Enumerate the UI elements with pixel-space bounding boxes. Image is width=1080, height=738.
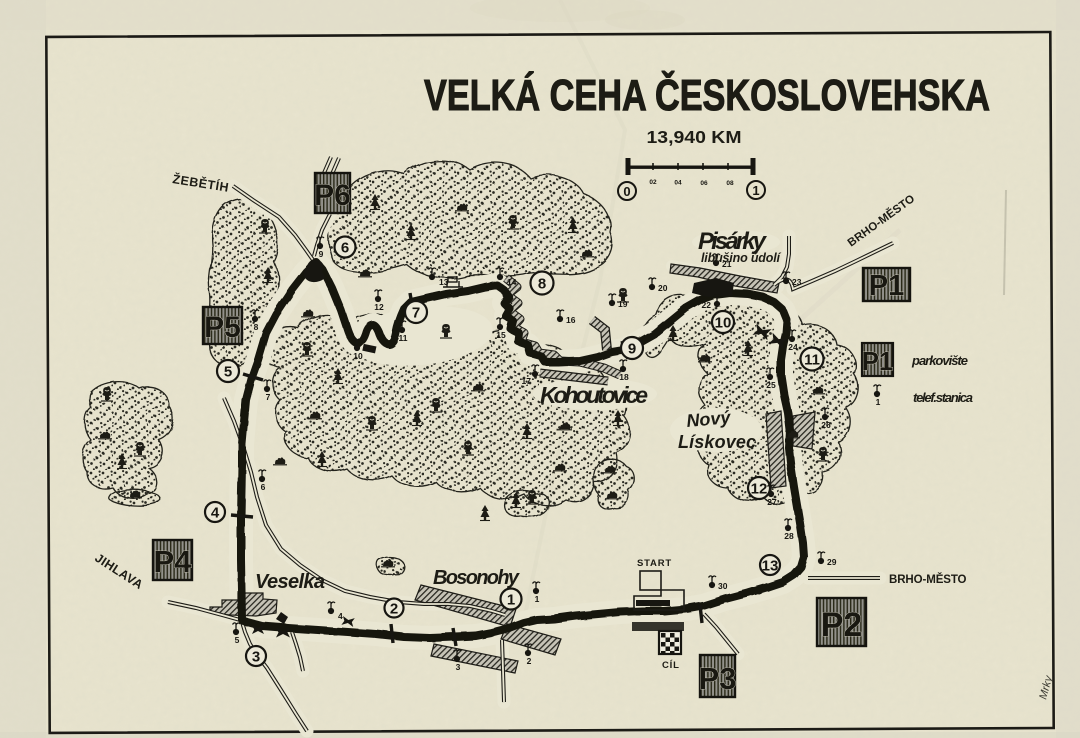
svg-text:7: 7: [412, 305, 420, 322]
svg-text:1: 1: [876, 397, 881, 407]
svg-text:5: 5: [224, 364, 232, 381]
svg-text:12: 12: [751, 481, 768, 498]
svg-text:P2: P2: [821, 606, 863, 644]
svg-text:8: 8: [538, 276, 546, 293]
svg-text:2: 2: [527, 656, 532, 666]
svg-text:libušino údolí: libušino údolí: [701, 251, 782, 265]
svg-text:P3: P3: [699, 661, 737, 696]
svg-text:12: 12: [374, 302, 384, 312]
svg-text:1: 1: [535, 594, 540, 604]
svg-text:START: START: [637, 558, 672, 569]
svg-text:13,940 KM: 13,940 KM: [647, 127, 742, 147]
svg-text:10: 10: [353, 351, 363, 361]
svg-text:18: 18: [619, 372, 629, 382]
svg-text:VELKÁ CEHA ČESKOSLOVEHSKA: VELKÁ CEHA ČESKOSLOVEHSKA: [424, 69, 990, 120]
svg-text:23: 23: [792, 277, 802, 287]
svg-text:Veselka: Veselka: [255, 571, 325, 593]
svg-text:16: 16: [566, 315, 576, 325]
svg-text:P6: P6: [314, 179, 351, 212]
svg-text:parkovište: parkovište: [911, 353, 968, 368]
svg-text:1: 1: [507, 592, 515, 609]
svg-text:Bosonohy: Bosonohy: [433, 567, 520, 589]
svg-text:telef.stanica: telef.stanica: [913, 390, 973, 405]
svg-text:13: 13: [762, 558, 779, 575]
svg-text:22: 22: [702, 300, 712, 310]
svg-text:24: 24: [788, 342, 798, 352]
svg-text:1: 1: [752, 183, 759, 198]
svg-text:25: 25: [766, 380, 776, 390]
svg-text:P5: P5: [204, 311, 241, 344]
svg-text:11: 11: [399, 333, 408, 343]
svg-text:2: 2: [390, 601, 398, 618]
svg-text:P1: P1: [869, 270, 904, 302]
svg-text:Lískovec: Lískovec: [678, 432, 756, 452]
svg-text:8: 8: [254, 322, 259, 332]
svg-text:4: 4: [211, 505, 220, 522]
svg-text:6: 6: [341, 240, 349, 257]
svg-text:3: 3: [252, 649, 260, 666]
svg-text:7: 7: [266, 392, 271, 402]
svg-text:14: 14: [507, 277, 517, 287]
svg-text:30: 30: [718, 581, 728, 591]
svg-text:08: 08: [726, 180, 734, 187]
svg-text:9: 9: [628, 341, 636, 358]
svg-text:29: 29: [827, 557, 837, 567]
svg-text:P4: P4: [154, 544, 193, 579]
svg-text:Nový: Nový: [686, 407, 733, 431]
svg-text:4: 4: [338, 611, 343, 621]
svg-text:28: 28: [784, 531, 794, 541]
svg-text:Kohoutovice: Kohoutovice: [540, 382, 648, 408]
svg-text:17: 17: [522, 376, 532, 386]
svg-text:27: 27: [767, 497, 777, 507]
svg-text:15: 15: [496, 330, 506, 340]
svg-text:06: 06: [700, 180, 708, 187]
svg-text:11: 11: [804, 352, 820, 369]
svg-text:02: 02: [649, 179, 657, 186]
svg-text:0: 0: [623, 184, 630, 199]
svg-text:10: 10: [715, 315, 732, 332]
svg-text:04: 04: [674, 180, 682, 187]
svg-text:BRHO-MĚSTO: BRHO-MĚSTO: [889, 573, 967, 586]
svg-text:26: 26: [821, 420, 831, 430]
svg-text:3: 3: [456, 662, 461, 672]
svg-text:5: 5: [235, 635, 240, 645]
svg-text:CÍL: CÍL: [662, 660, 680, 671]
svg-text:6: 6: [261, 482, 266, 492]
svg-text:P1: P1: [862, 346, 894, 376]
svg-text:9: 9: [319, 249, 324, 259]
svg-text:20: 20: [658, 283, 668, 293]
